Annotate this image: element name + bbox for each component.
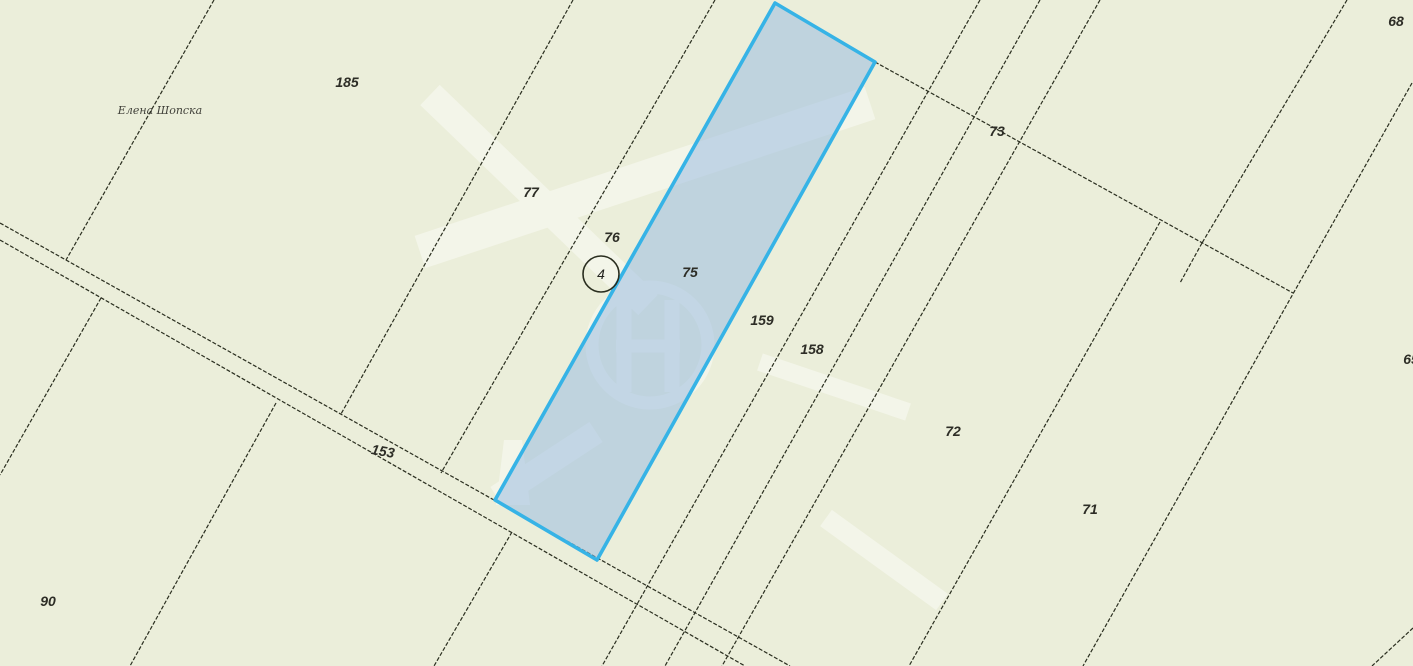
owner-name-label: Елена Шопска [117, 104, 202, 117]
parcel-label-90: 90 [40, 593, 56, 609]
cadastral-map[interactable]: 4 185777675159158736865727115390 Елена Ш… [0, 0, 1413, 666]
parcel-label-73: 73 [989, 123, 1005, 139]
parcel-label-68: 68 [1388, 13, 1404, 29]
parcel-label-72: 72 [945, 423, 961, 439]
parcel-label-65: 65 [1403, 351, 1413, 367]
parcel-label-159: 159 [750, 312, 774, 328]
parcel-label-158: 158 [800, 341, 824, 357]
cadastral-map-viewport[interactable]: 4 185777675159158736865727115390 Елена Ш… [0, 0, 1413, 666]
parcel-label-76: 76 [604, 229, 620, 245]
parcel-label-75: 75 [682, 264, 698, 280]
parcel-label-185: 185 [335, 74, 359, 90]
parcel-label-71: 71 [1082, 501, 1098, 517]
parcel-label-77: 77 [523, 184, 540, 200]
marker-number: 4 [597, 266, 605, 282]
